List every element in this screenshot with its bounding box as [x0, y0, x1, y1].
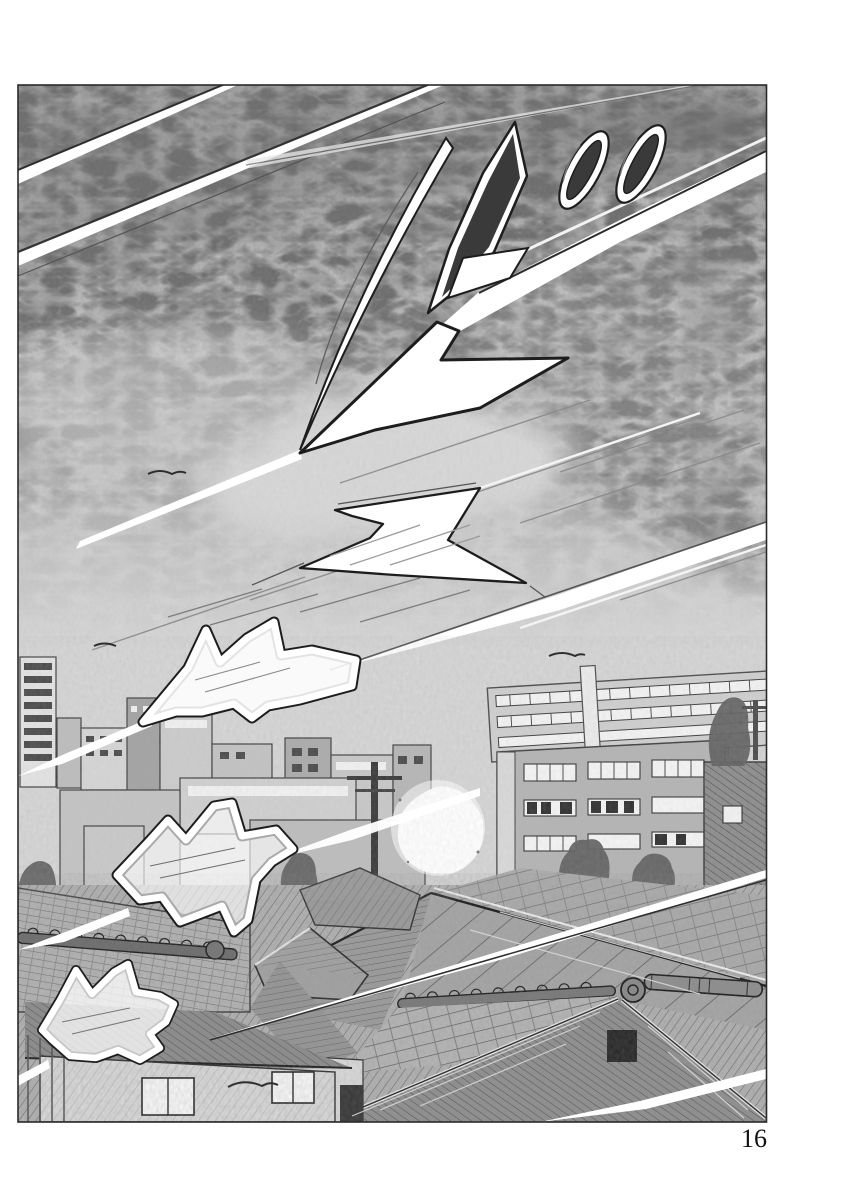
svg-text:16: 16 [741, 1124, 767, 1153]
